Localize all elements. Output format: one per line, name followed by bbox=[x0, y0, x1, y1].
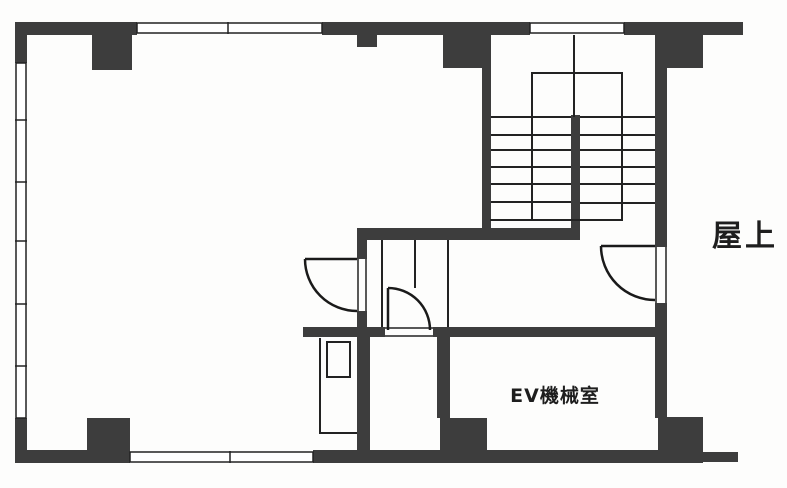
shaft-outline bbox=[320, 338, 357, 433]
column-top-right bbox=[655, 28, 703, 68]
window-top-band bbox=[137, 23, 322, 33]
column-top-left bbox=[92, 22, 132, 70]
columns bbox=[87, 22, 703, 463]
door-swing-arc bbox=[388, 288, 430, 330]
floor-plan: 屋上 EV機械室 bbox=[0, 0, 787, 488]
outer-walls bbox=[15, 22, 743, 463]
column-bottom-right bbox=[658, 417, 703, 457]
column-top-middle-stub bbox=[357, 32, 377, 47]
shaft-fixture bbox=[327, 342, 350, 377]
wall-bottom-stub bbox=[703, 452, 738, 462]
door-swing-arc bbox=[601, 246, 655, 300]
floor-plan-drawing bbox=[0, 0, 787, 488]
inner-walls bbox=[303, 32, 667, 457]
small-room-left-wall-upper bbox=[357, 228, 367, 259]
wall-top-middle bbox=[322, 22, 530, 35]
partitions bbox=[382, 240, 448, 327]
window-bottom-band bbox=[130, 452, 313, 462]
elevator-shaft bbox=[320, 338, 357, 433]
ev-room-left-wall bbox=[437, 337, 450, 418]
wall-left-upper bbox=[15, 22, 27, 63]
stairwell-bottom-wall bbox=[360, 228, 580, 240]
door-swing-arc bbox=[305, 259, 357, 311]
wall-right-lower bbox=[655, 303, 667, 418]
column-bottom-left bbox=[87, 418, 130, 463]
mid-horizontal-wall-right bbox=[433, 327, 667, 337]
door-corridor bbox=[305, 259, 366, 311]
column-ev-room-left bbox=[440, 418, 487, 457]
window-stairwell-band bbox=[530, 23, 624, 33]
stairwell-left-wall bbox=[482, 32, 491, 240]
wall-bottom-right bbox=[313, 450, 703, 463]
roof-label: 屋上 bbox=[708, 211, 782, 255]
mid-horizontal-wall-left bbox=[303, 327, 385, 337]
door-roof-access bbox=[601, 246, 666, 303]
door-small-room bbox=[385, 288, 433, 336]
column-stair-left bbox=[443, 28, 485, 68]
ev-machine-room-label: EV機械室 bbox=[500, 381, 610, 408]
shaft-right-wall bbox=[357, 327, 370, 457]
stair-center-wall bbox=[571, 115, 580, 240]
